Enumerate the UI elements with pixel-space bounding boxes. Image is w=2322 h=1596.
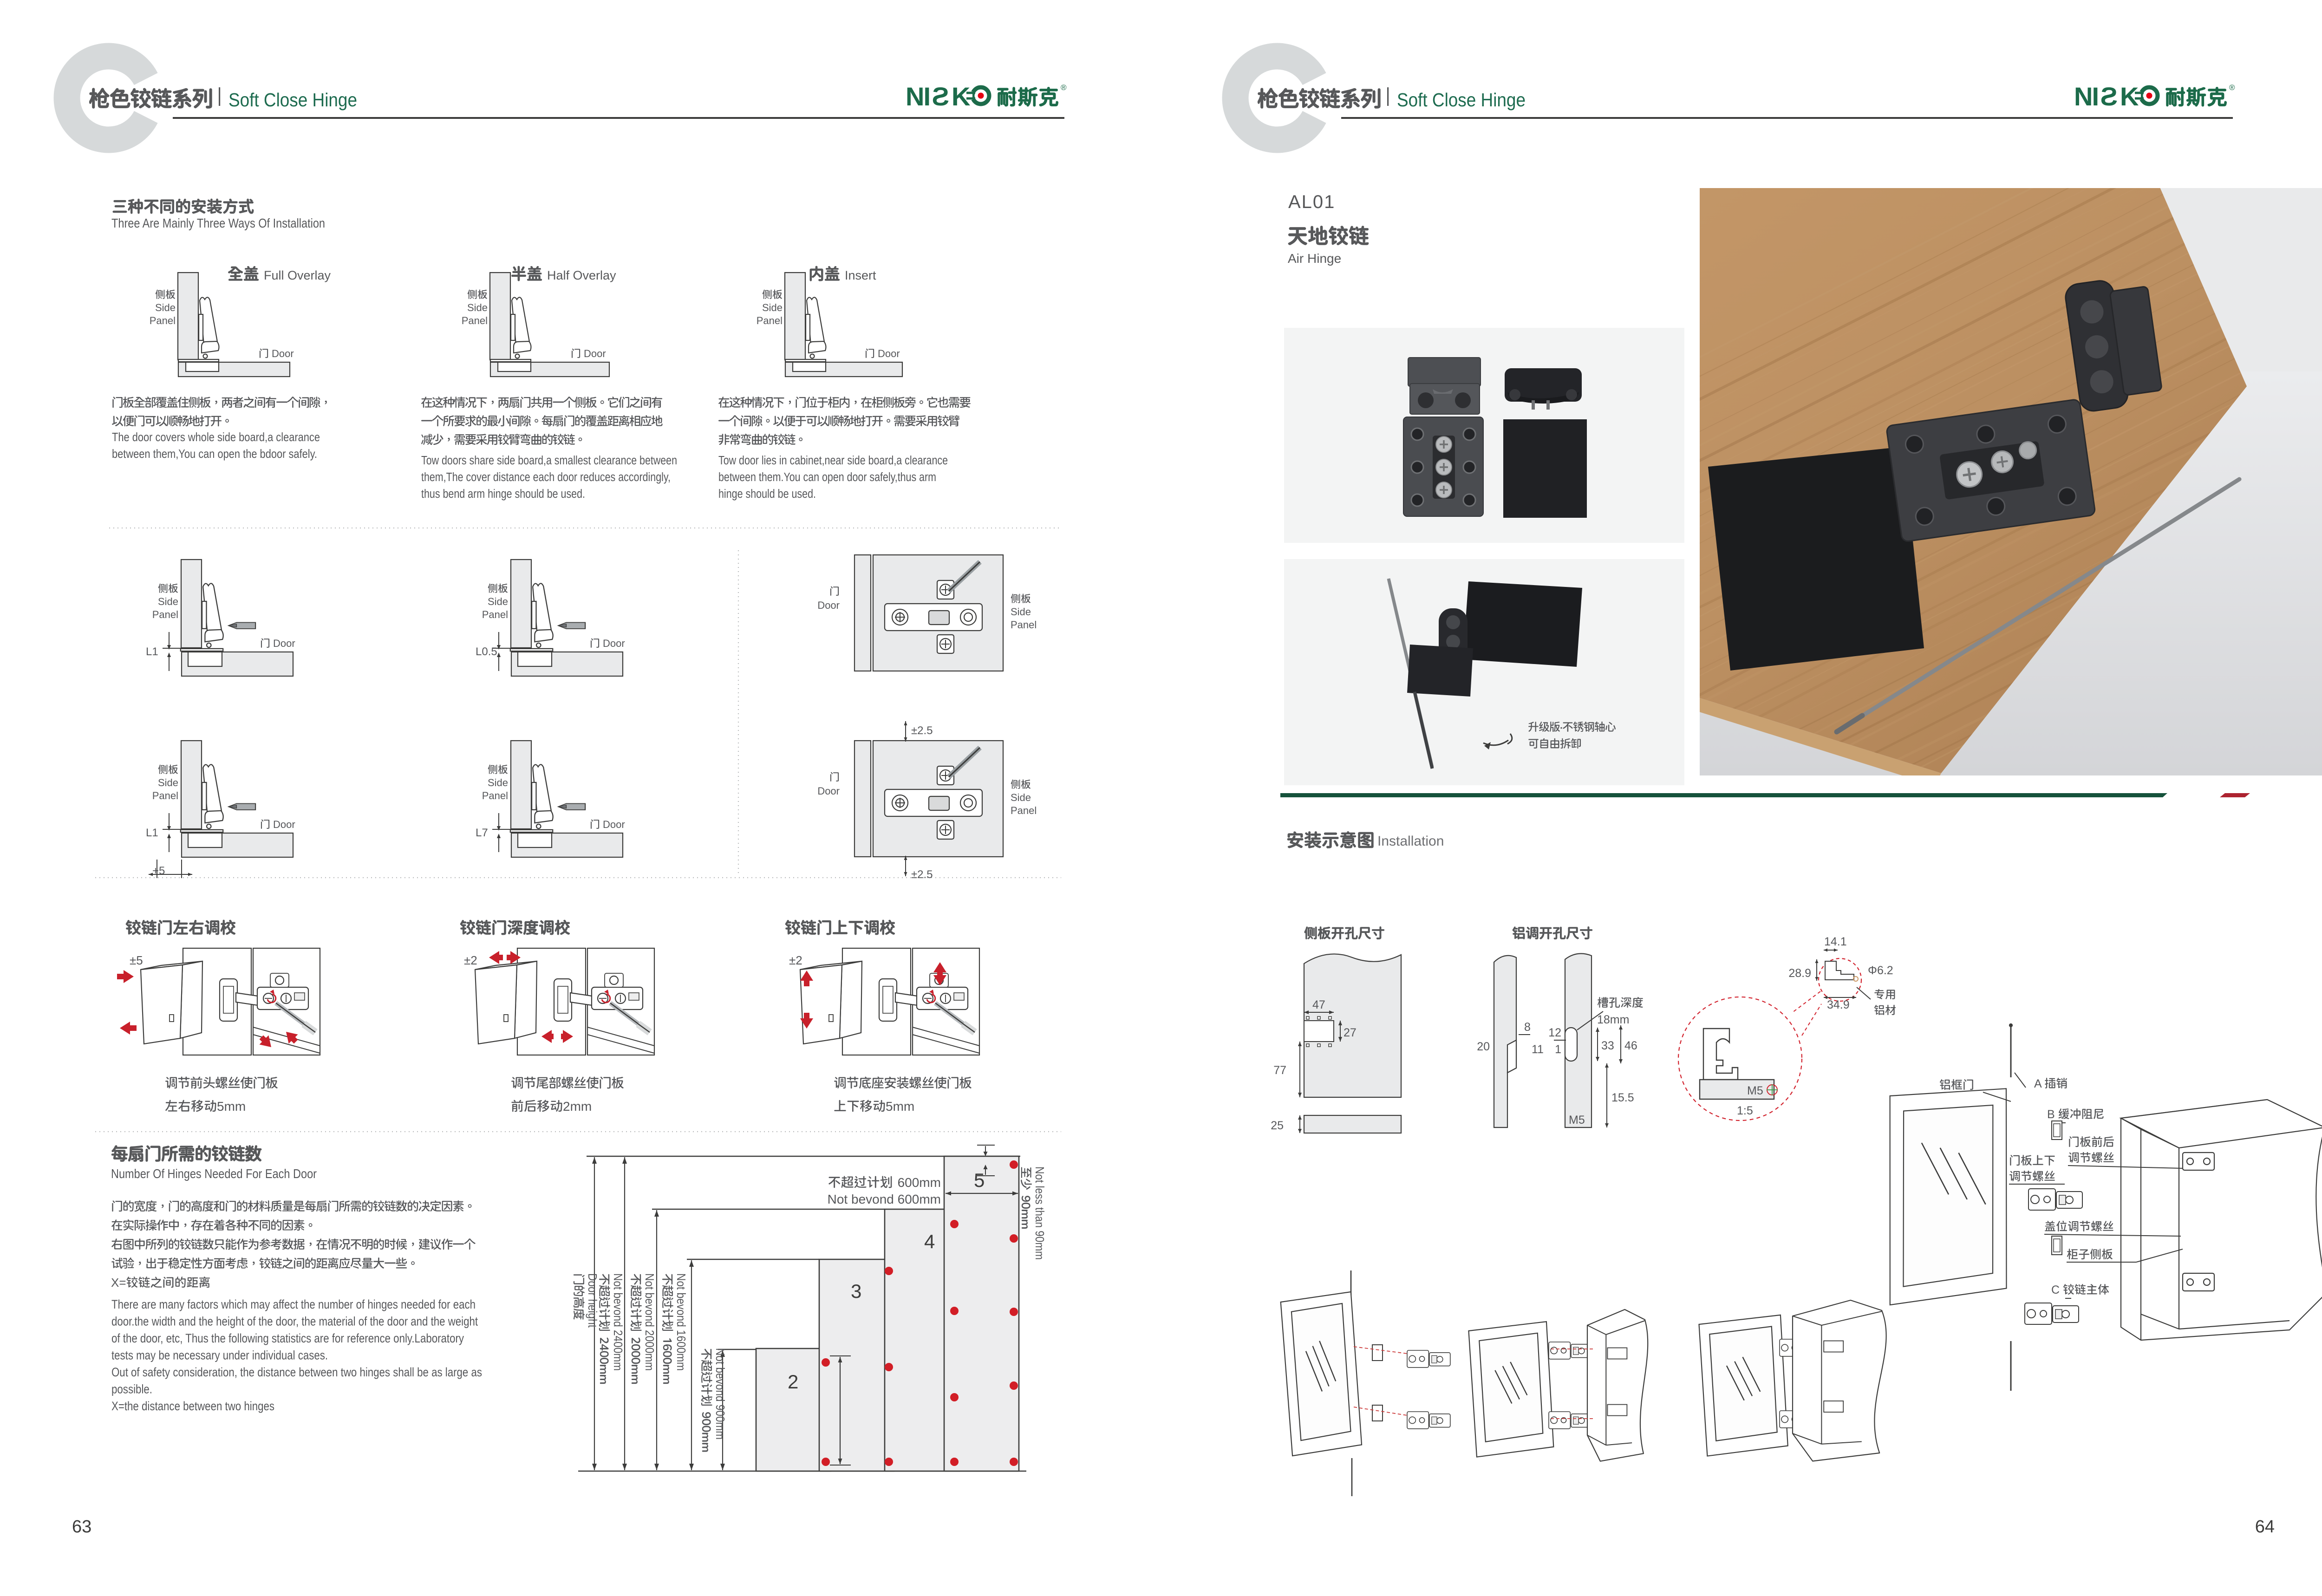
- svg-text:Door: Door: [273, 638, 295, 649]
- svg-text:between them,You can open the: between them,You can open the bdoor safe…: [112, 447, 317, 461]
- svg-text:Door: Door: [273, 819, 295, 830]
- svg-text:Φ6.2: Φ6.2: [1868, 964, 1893, 977]
- svg-text:A: A: [2034, 1077, 2042, 1090]
- svg-text:Installation: Installation: [1377, 834, 1444, 849]
- svg-text:Full Overlay: Full Overlay: [264, 268, 331, 282]
- svg-text:Door height: Door height: [586, 1273, 600, 1328]
- svg-text:27: 27: [1344, 1026, 1357, 1039]
- svg-text:2mm: 2mm: [563, 1099, 592, 1114]
- svg-text:33: 33: [1601, 1039, 1614, 1052]
- svg-text:20: 20: [1477, 1040, 1490, 1053]
- svg-text:+5: +5: [152, 865, 165, 877]
- svg-text:600mm: 600mm: [898, 1175, 941, 1190]
- svg-text:L0.5: L0.5: [476, 645, 497, 658]
- svg-text:Tow doors share side board,a s: Tow doors share side board,a smallest cl…: [421, 454, 677, 467]
- svg-text:1:5: 1:5: [1737, 1104, 1753, 1117]
- svg-text:63: 63: [72, 1517, 91, 1537]
- svg-text:Number Of Hinges Needed For Ea: Number Of Hinges Needed For Each Door: [111, 1166, 317, 1181]
- svg-text:3: 3: [851, 1280, 861, 1302]
- svg-text:Insert: Insert: [845, 268, 876, 282]
- svg-text:There are many factors which m: There are many factors which may affect …: [111, 1297, 476, 1311]
- svg-text:NI: NI: [906, 82, 930, 111]
- svg-text:X=: X=: [111, 1276, 126, 1290]
- svg-text:Not bevond 2400mm: Not bevond 2400mm: [611, 1273, 625, 1371]
- svg-text:2: 2: [788, 1371, 798, 1393]
- svg-text:Panel: Panel: [482, 609, 508, 620]
- svg-text:S: S: [2100, 82, 2118, 111]
- svg-text:M5: M5: [1569, 1114, 1585, 1127]
- svg-text:Side: Side: [158, 777, 178, 788]
- svg-text:S: S: [932, 82, 949, 111]
- svg-text:77: 77: [1273, 1064, 1286, 1077]
- svg-text:Not bevond 2000mm: Not bevond 2000mm: [643, 1273, 657, 1371]
- svg-text:46: 46: [1624, 1039, 1637, 1052]
- svg-text:Side: Side: [158, 596, 178, 607]
- svg-text:thus bend arm hinge should be: thus bend arm hinge should be used.: [421, 488, 585, 501]
- svg-text:Not bevond 900mm: Not bevond 900mm: [713, 1348, 727, 1440]
- svg-text:5mm: 5mm: [886, 1099, 914, 1114]
- svg-text:±2: ±2: [789, 953, 802, 967]
- svg-text:18mm: 18mm: [1597, 1013, 1629, 1026]
- svg-text:Out of safety consideration, t: Out of safety consideration, the distanc…: [111, 1365, 482, 1379]
- svg-text:Tow door lies in cabinet,near: Tow door lies in cabinet,near side board…: [718, 454, 948, 467]
- svg-text:Side: Side: [1011, 792, 1031, 803]
- svg-text:door.the width and the height: door.the width and the height of the doo…: [111, 1315, 478, 1329]
- svg-text:of the door, etc, Thus the fol: of the door, etc, Thus the following sta…: [111, 1331, 464, 1345]
- svg-text:64: 64: [2255, 1517, 2275, 1537]
- svg-text:12: 12: [1548, 1026, 1561, 1039]
- svg-text:The door covers whole side boa: The door covers whole side board,a clear…: [112, 430, 320, 444]
- svg-text:Three Are Mainly Three Ways Of: Three Are Mainly Three Ways Of Installat…: [111, 216, 325, 230]
- svg-text:Panel: Panel: [1011, 619, 1037, 631]
- svg-text:them,The cover distance each d: them,The cover distance each door reduce…: [421, 471, 671, 484]
- svg-text:4: 4: [924, 1231, 935, 1252]
- svg-text:Panel: Panel: [1011, 805, 1037, 816]
- svg-text:Door: Door: [603, 638, 625, 649]
- svg-text:34.9: 34.9: [1827, 998, 1850, 1011]
- svg-text:Soft Close Hinge: Soft Close Hinge: [228, 89, 357, 111]
- svg-text:±2.5: ±2.5: [911, 868, 933, 881]
- svg-text:Door: Door: [603, 819, 625, 830]
- svg-text:Door: Door: [817, 599, 840, 611]
- svg-text:Door: Door: [584, 348, 606, 359]
- svg-text:Not bevond 600mm: Not bevond 600mm: [828, 1192, 941, 1206]
- svg-text:Side: Side: [762, 302, 783, 313]
- svg-text:M5: M5: [1747, 1084, 1763, 1097]
- svg-text:11: 11: [1532, 1043, 1544, 1056]
- svg-text:Panel: Panel: [482, 790, 508, 801]
- svg-text:5mm: 5mm: [217, 1099, 246, 1114]
- svg-text:Door: Door: [272, 348, 294, 359]
- svg-text:Air Hinge: Air Hinge: [1288, 251, 1341, 266]
- svg-text:Panel: Panel: [152, 790, 178, 801]
- svg-text:NI: NI: [2074, 82, 2098, 111]
- svg-text:Not bevond 1600mm: Not bevond 1600mm: [674, 1273, 688, 1371]
- svg-text:14.1: 14.1: [1824, 935, 1847, 948]
- svg-text:Door: Door: [817, 785, 840, 797]
- svg-text:Panel: Panel: [152, 609, 178, 620]
- svg-text:5: 5: [974, 1169, 985, 1191]
- svg-text:Door: Door: [878, 348, 900, 359]
- svg-text:between them.You can open door: between them.You can open door safely,th…: [718, 471, 936, 484]
- svg-text:C: C: [2051, 1283, 2060, 1296]
- svg-text:tests may be necessary under i: tests may be necessary under individual …: [111, 1348, 328, 1362]
- svg-text:X=the distance between two hin: X=the distance between two hinges: [111, 1399, 274, 1413]
- svg-text:Panel: Panel: [462, 315, 488, 326]
- svg-text:25: 25: [1271, 1119, 1284, 1132]
- svg-text:±5: ±5: [130, 953, 143, 967]
- svg-text:Side: Side: [155, 302, 176, 313]
- svg-text:L7: L7: [476, 827, 488, 839]
- svg-text:15.5: 15.5: [1611, 1091, 1634, 1104]
- svg-text:1: 1: [1555, 1043, 1561, 1056]
- svg-text:8: 8: [1524, 1021, 1531, 1034]
- svg-text:±2: ±2: [464, 953, 477, 967]
- svg-text:possible.: possible.: [111, 1382, 152, 1396]
- svg-text:®: ®: [2229, 83, 2235, 92]
- svg-text:Side: Side: [467, 302, 488, 313]
- svg-text:±2.5: ±2.5: [911, 724, 933, 737]
- svg-text:Soft Close Hinge: Soft Close Hinge: [1397, 89, 1526, 111]
- svg-text:L1: L1: [146, 827, 158, 839]
- svg-text:28.9: 28.9: [1788, 967, 1811, 980]
- svg-text:Side: Side: [488, 596, 508, 607]
- svg-text:Half Overlay: Half Overlay: [547, 268, 616, 282]
- svg-text:L1: L1: [146, 645, 158, 658]
- svg-text:AL01: AL01: [1288, 192, 1335, 212]
- svg-text:Not less than 90mm: Not less than 90mm: [1033, 1166, 1047, 1260]
- svg-text:B: B: [2047, 1108, 2055, 1121]
- svg-text:®: ®: [1061, 83, 1067, 92]
- svg-text:Side: Side: [1011, 606, 1031, 618]
- svg-text:Panel: Panel: [757, 315, 783, 326]
- svg-text:47: 47: [1312, 998, 1325, 1011]
- svg-text:hinge should be used.: hinge should be used.: [718, 488, 816, 501]
- svg-text:Side: Side: [488, 777, 508, 788]
- svg-text:Panel: Panel: [150, 315, 176, 326]
